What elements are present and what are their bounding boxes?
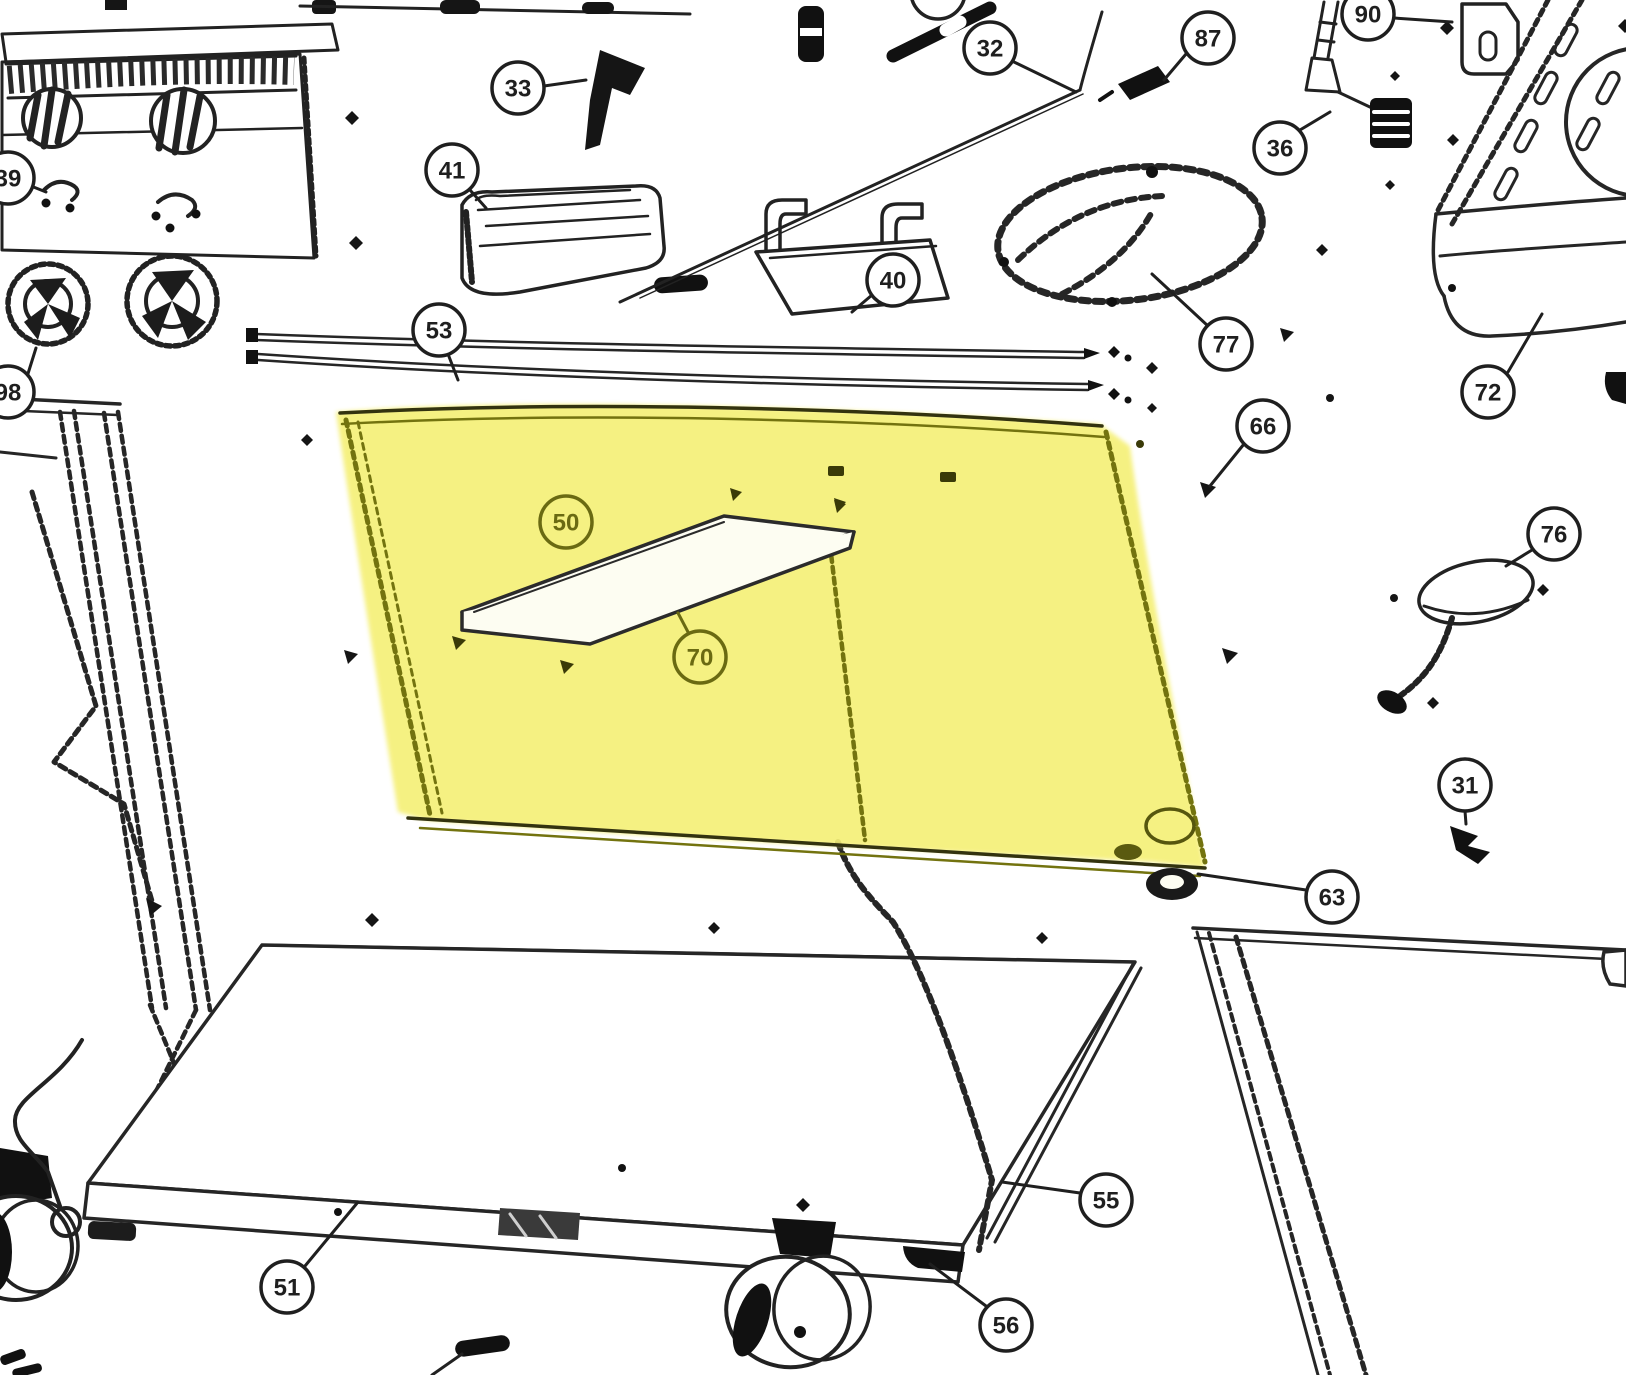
callout-72: 72 [1462, 314, 1542, 418]
svg-text:39: 39 [0, 166, 21, 193]
callout-31: 31 [1439, 759, 1491, 824]
callout-36: 36 [1254, 112, 1330, 174]
svg-text:87: 87 [1195, 26, 1222, 53]
fitting-part [1100, 66, 1170, 100]
callout-98: 98 [0, 348, 36, 418]
top-rod [300, 0, 690, 14]
callout-56: 56 [930, 1264, 1032, 1351]
highlighted-rear-panel [336, 404, 1205, 900]
heat-shield-tube [1373, 551, 1539, 719]
svg-text:70: 70 [687, 645, 714, 672]
hook-bracket [756, 200, 948, 314]
callout-90: 90 [1342, 0, 1452, 40]
callout-55: 55 [1002, 1174, 1132, 1226]
svg-text:32: 32 [977, 36, 1004, 63]
callout-77: 77 [1152, 274, 1252, 370]
svg-text:50: 50 [553, 510, 580, 537]
igniter-part [585, 50, 645, 150]
callout-33: 33 [492, 62, 586, 114]
parts-diagram: 3998334153403287903677726650707631635551… [0, 0, 1626, 1375]
callout-39: 39 [0, 152, 46, 204]
svg-text:77: 77 [1213, 332, 1240, 359]
svg-text:36: 36 [1267, 136, 1294, 163]
svg-text:41: 41 [439, 158, 466, 185]
right-bottom-panel [1193, 928, 1626, 1375]
long-rods [246, 328, 1132, 404]
callout-32: 32 [964, 22, 1076, 92]
svg-text:55: 55 [1093, 1188, 1120, 1215]
highlight-region [336, 404, 1205, 868]
slot-bracket [1462, 4, 1518, 74]
grommet-part [1146, 868, 1198, 900]
grease-tray [462, 186, 664, 294]
caster-left [0, 1040, 82, 1300]
svg-text:33: 33 [505, 76, 532, 103]
callout-66: 66 [1210, 400, 1289, 486]
svg-text:63: 63 [1319, 885, 1346, 912]
svg-text:66: 66 [1250, 414, 1277, 441]
control-knobs [8, 256, 217, 346]
svg-text:56: 56 [993, 1313, 1020, 1340]
callout-76: 76 [1506, 508, 1580, 566]
clip-part [1450, 826, 1490, 864]
bottom-pin [0, 1334, 511, 1375]
svg-text:90: 90 [1355, 2, 1382, 29]
svg-text:31: 31 [1452, 773, 1479, 800]
svg-text:72: 72 [1475, 380, 1502, 407]
svg-text:76: 76 [1541, 522, 1568, 549]
callout-63: 63 [1198, 871, 1358, 923]
svg-text:53: 53 [426, 318, 453, 345]
svg-text:51: 51 [274, 1275, 301, 1302]
svg-text:98: 98 [0, 380, 21, 407]
callout-41: 41 [426, 144, 486, 208]
rope-ring [990, 152, 1270, 315]
callout-87: 87 [1164, 12, 1234, 80]
control-panel [2, 0, 363, 258]
svg-text:40: 40 [880, 268, 907, 295]
